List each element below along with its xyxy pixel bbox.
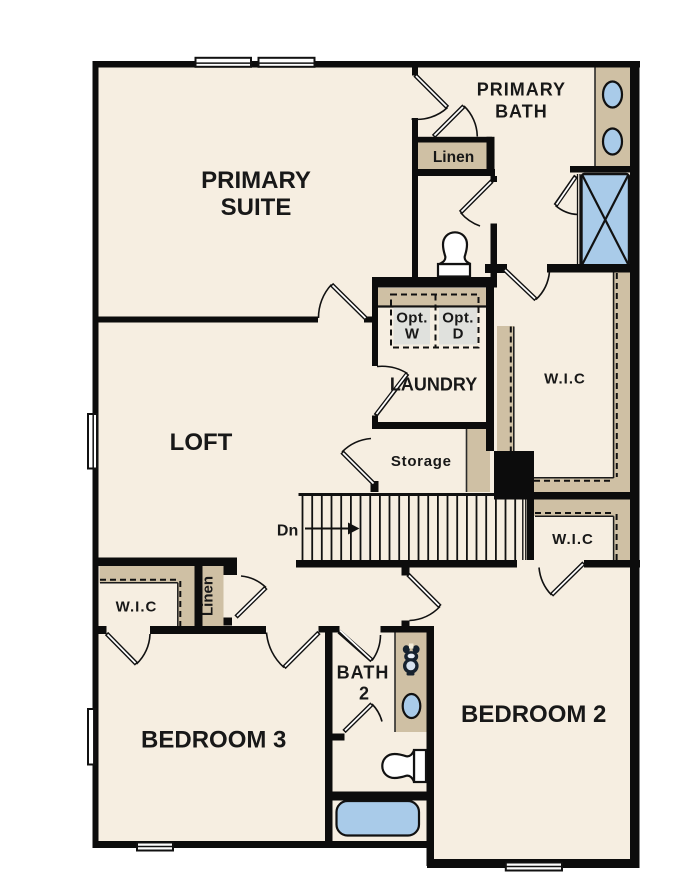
svg-text:LOFT: LOFT [170,429,233,456]
svg-text:LAUNDRY: LAUNDRY [390,375,477,395]
svg-text:Opt.: Opt. [396,310,428,327]
svg-text:D: D [453,326,464,343]
svg-text:BEDROOM 2: BEDROOM 2 [461,701,606,728]
svg-text:BATH: BATH [495,102,548,122]
svg-text:Linen: Linen [433,149,474,166]
svg-text:W.I.C: W.I.C [544,371,586,388]
svg-text:W.I.C: W.I.C [552,531,594,548]
svg-text:W: W [405,326,420,343]
svg-text:2: 2 [359,684,369,704]
svg-text:Dn: Dn [277,523,298,540]
svg-text:BEDROOM 3: BEDROOM 3 [141,727,286,754]
svg-text:SUITE: SUITE [221,194,292,221]
svg-text:PRIMARY: PRIMARY [477,80,566,100]
svg-text:Opt.: Opt. [442,310,474,327]
svg-text:BATH: BATH [337,663,390,683]
svg-text:Storage: Storage [391,453,452,470]
svg-text:PRIMARY: PRIMARY [201,167,311,194]
svg-text:Linen: Linen [200,576,217,616]
svg-text:W.I.C: W.I.C [116,599,158,616]
